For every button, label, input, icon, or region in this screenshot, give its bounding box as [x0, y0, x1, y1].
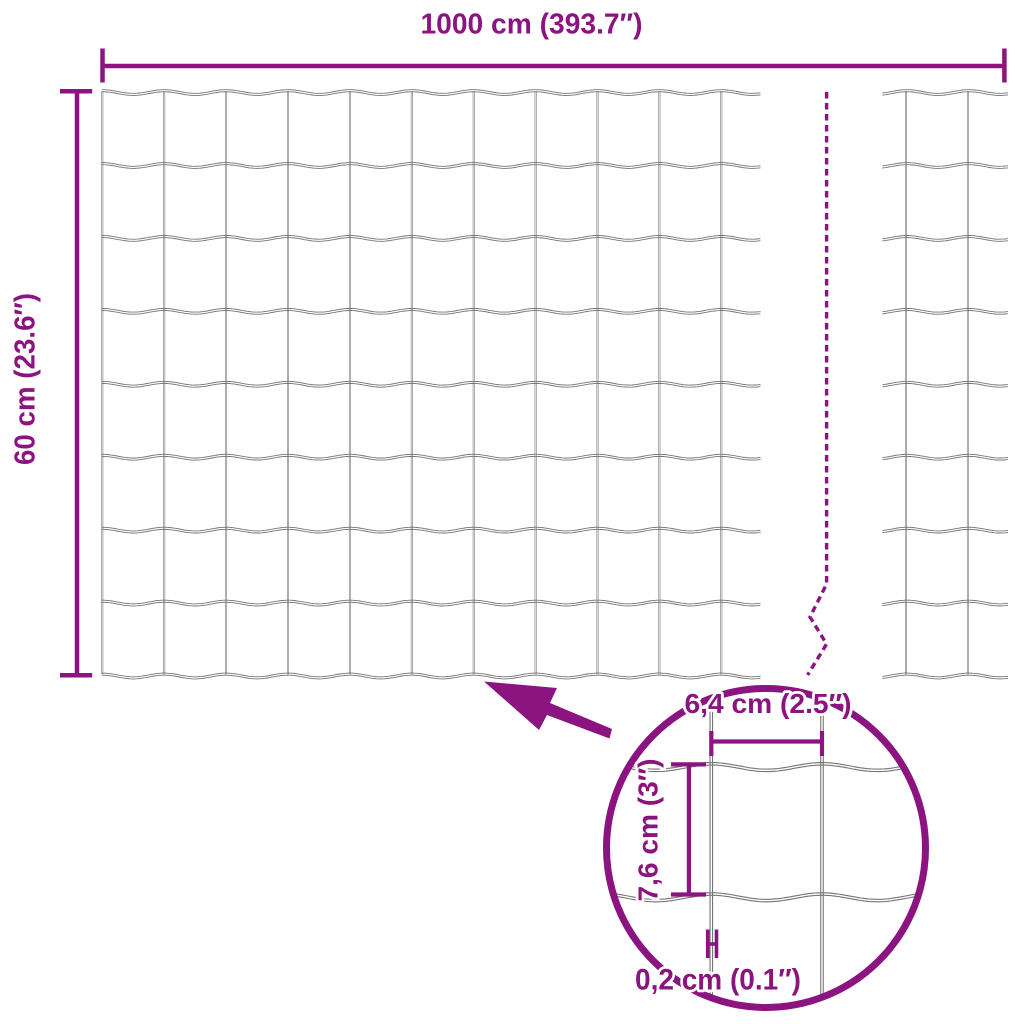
svg-text:7,6 cm (3″): 7,6 cm (3″) — [633, 759, 664, 902]
svg-text:1000 cm (393.7″): 1000 cm (393.7″) — [421, 9, 643, 41]
svg-text:60 cm (23.6″): 60 cm (23.6″) — [10, 293, 42, 465]
svg-text:6,4 cm (2.5″): 6,4 cm (2.5″) — [685, 688, 852, 719]
svg-text:0,2 cm (0.1″): 0,2 cm (0.1″) — [635, 964, 801, 997]
